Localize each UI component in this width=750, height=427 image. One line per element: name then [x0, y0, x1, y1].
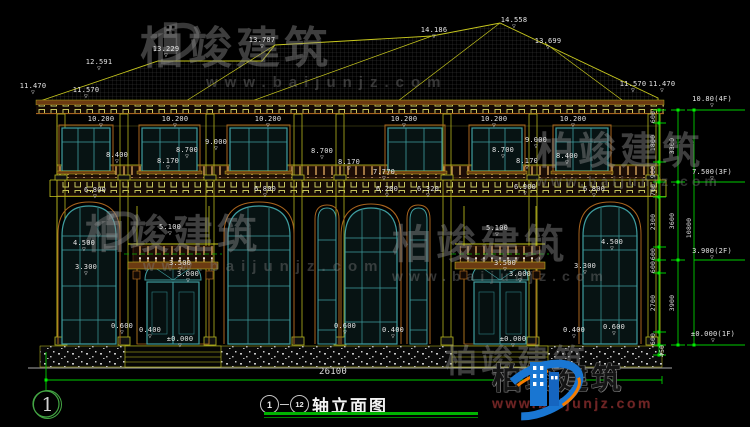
axis-range-dash	[280, 404, 289, 405]
narrow-window	[407, 205, 430, 344]
cad-elevation-screenshot: 柏竣建筑 www.baijunjz.com 柏竣建筑 www.baijunjz.…	[0, 0, 750, 427]
roof	[36, 23, 664, 114]
grid-axis-bubble: 1	[33, 390, 62, 419]
title-underline-thin	[264, 417, 478, 418]
elevation-drawing	[0, 0, 750, 427]
title-underline	[264, 412, 478, 415]
entry-steps	[125, 346, 221, 367]
entry-steps	[452, 346, 548, 367]
plinth	[28, 346, 672, 368]
first-floor-windows	[58, 202, 641, 344]
narrow-window	[315, 205, 339, 344]
